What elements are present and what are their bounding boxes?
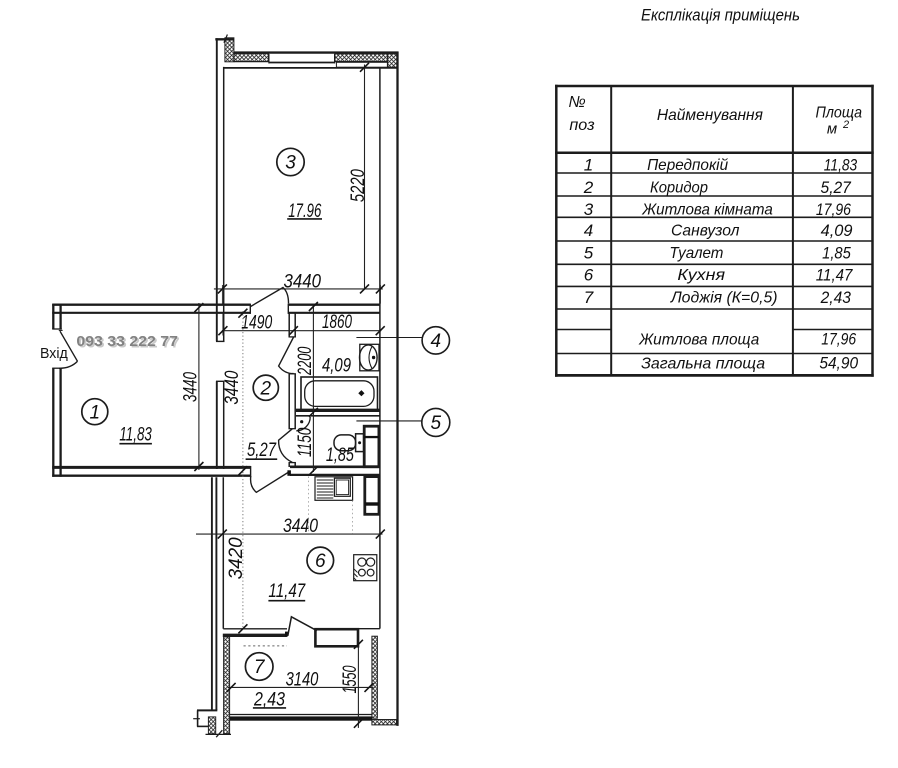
- svg-text:№: №: [568, 94, 585, 111]
- svg-text:3: 3: [285, 153, 296, 174]
- svg-text:1490: 1490: [241, 313, 272, 334]
- svg-text:6: 6: [584, 266, 594, 285]
- svg-text:2200: 2200: [295, 346, 316, 375]
- svg-text:2: 2: [842, 119, 849, 131]
- svg-text:Лоджія (К=0,5): Лоджія (К=0,5): [670, 289, 778, 306]
- svg-text:1150: 1150: [295, 427, 316, 457]
- svg-text:м: м: [827, 121, 837, 138]
- svg-text:5,27: 5,27: [247, 440, 277, 461]
- svg-text:11,47: 11,47: [268, 581, 306, 602]
- svg-text:Коридор: Коридор: [650, 179, 708, 196]
- svg-text:4: 4: [431, 331, 442, 352]
- svg-text:1,85: 1,85: [326, 445, 354, 466]
- svg-text:11,83: 11,83: [824, 156, 858, 175]
- svg-text:5: 5: [584, 243, 594, 262]
- svg-text:7: 7: [254, 657, 266, 678]
- svg-text:3440: 3440: [284, 271, 322, 292]
- svg-text:3420: 3420: [226, 537, 247, 579]
- svg-text:2: 2: [260, 378, 272, 399]
- svg-text:Передпокій: Передпокій: [647, 157, 728, 174]
- svg-text:54,90: 54,90: [819, 354, 858, 373]
- svg-text:4,09: 4,09: [821, 221, 853, 240]
- svg-text:17,96: 17,96: [821, 330, 856, 349]
- svg-text:11,83: 11,83: [119, 425, 152, 446]
- svg-text:093 33 222 77: 093 33 222 77: [76, 334, 178, 350]
- svg-text:1: 1: [90, 402, 101, 423]
- svg-text:1860: 1860: [322, 312, 352, 333]
- svg-text:Площа: Площа: [816, 105, 863, 122]
- svg-text:1550: 1550: [340, 665, 361, 693]
- svg-text:1,85: 1,85: [822, 243, 851, 262]
- svg-text:2,43: 2,43: [820, 288, 852, 307]
- svg-text:Житлова площа: Житлова площа: [638, 332, 759, 349]
- svg-text:3440: 3440: [283, 516, 318, 537]
- svg-text:5: 5: [431, 413, 442, 434]
- svg-text:Вхід: Вхід: [40, 345, 68, 362]
- svg-text:6: 6: [315, 551, 326, 572]
- svg-text:Експлікація приміщень: Експлікація приміщень: [641, 6, 800, 25]
- svg-text:11,47: 11,47: [816, 266, 853, 285]
- svg-text:4: 4: [584, 221, 593, 240]
- svg-text:3440: 3440: [222, 370, 243, 404]
- svg-text:Житлова кімната: Житлова кімната: [641, 202, 773, 219]
- svg-text:2,43: 2,43: [253, 690, 285, 711]
- svg-text:Кухня: Кухня: [677, 267, 725, 284]
- svg-text:5220: 5220: [348, 169, 369, 202]
- svg-text:Санвузол: Санвузол: [671, 223, 740, 240]
- svg-text:5,27: 5,27: [821, 178, 852, 197]
- svg-text:17.96: 17.96: [288, 201, 321, 222]
- svg-text:3440: 3440: [180, 372, 201, 402]
- svg-text:17,96: 17,96: [816, 200, 852, 219]
- svg-text:поз: поз: [569, 117, 594, 134]
- svg-text:Загальна площа: Загальна площа: [641, 356, 765, 373]
- svg-text:1: 1: [584, 156, 593, 175]
- svg-text:3140: 3140: [286, 670, 319, 691]
- svg-text:4,09: 4,09: [322, 356, 351, 377]
- svg-text:3: 3: [584, 200, 594, 219]
- svg-text:Туалет: Туалет: [669, 245, 723, 262]
- svg-text:Найменування: Найменування: [657, 107, 763, 124]
- svg-text:2: 2: [583, 178, 594, 197]
- svg-text:7: 7: [584, 288, 594, 307]
